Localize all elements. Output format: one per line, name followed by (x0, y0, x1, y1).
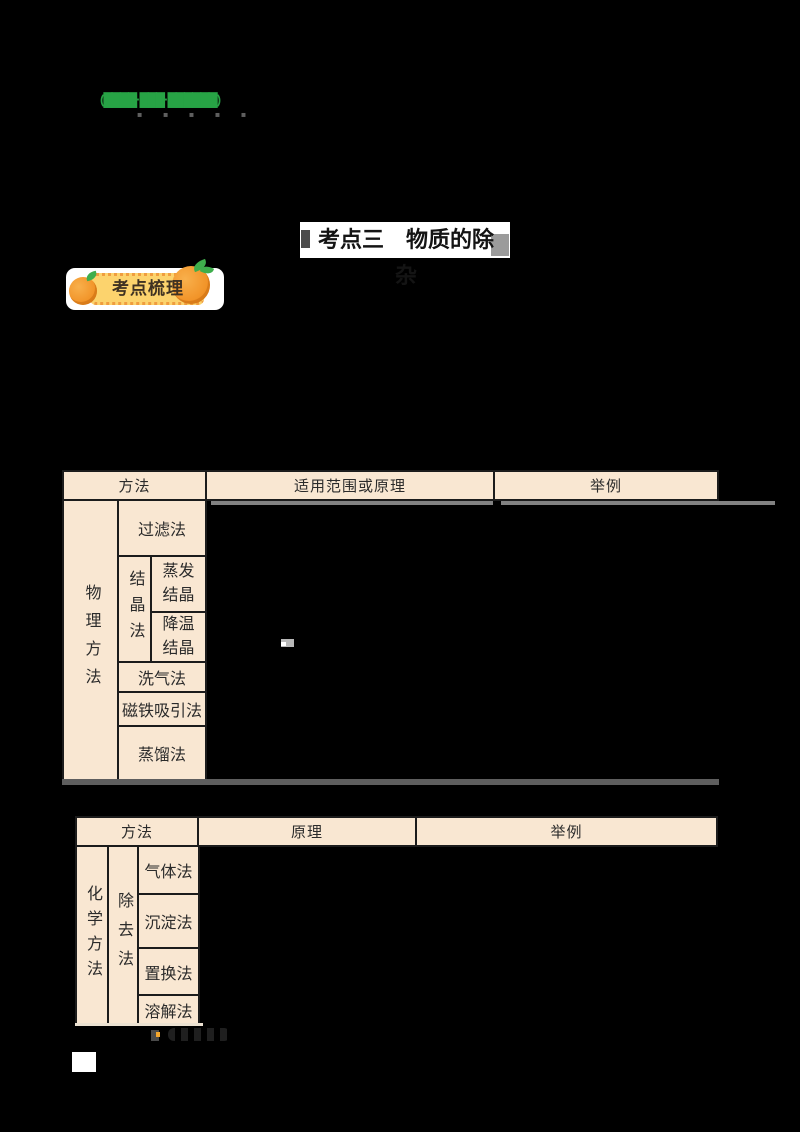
method-group-cell: 结晶法 (117, 555, 152, 663)
badge-strip-notch (210, 280, 220, 293)
method-group-label: 除去法 (111, 892, 135, 979)
method-cell: 降温结晶 (150, 611, 207, 663)
table-chemical-methods: 方法 原理 举例 化学方法 除去法 气体法 沉淀法 置换法 溶解法 (75, 816, 718, 1028)
column-header: 方法 (62, 470, 207, 501)
document-page: (████·███·██████) ▪ ▪ ▪ ▪ ▪ 考点三 物质的除杂 考点… (0, 0, 800, 1132)
column-header: 举例 (493, 470, 719, 501)
method-cell: 蒸发结晶 (150, 555, 207, 613)
category-cell: 物理方法 (62, 499, 119, 781)
method-cell: 磁铁吸引法 (117, 691, 207, 727)
badge-label: 考点梳理 (100, 277, 196, 301)
category-cell: 化学方法 (75, 845, 109, 1025)
category-label: 化学方法 (80, 885, 104, 985)
method-cell: 置换法 (137, 947, 200, 996)
method-label: 蒸发结晶 (159, 560, 199, 608)
category-label: 物理方法 (79, 584, 103, 696)
green-watermark-text: (████·███·██████) (100, 93, 220, 107)
content-remnant-orange-dot (156, 1032, 160, 1037)
column-header: 原理 (197, 816, 417, 847)
faint-dot-marks: ▪ ▪ ▪ ▪ ▪ (137, 110, 255, 119)
method-cell: 过滤法 (117, 499, 207, 557)
method-cell: 蒸馏法 (117, 725, 207, 781)
redacted-cell-edge (211, 501, 493, 505)
orange-fruit-icon (69, 277, 97, 305)
page-title: 考点三 物质的除杂 (308, 222, 504, 258)
white-mark (72, 1052, 96, 1072)
method-group-cell: 除去法 (107, 845, 139, 1025)
method-cell: 沉淀法 (137, 893, 200, 949)
method-cell: 洗气法 (117, 661, 207, 693)
table-bottom-border (62, 779, 719, 785)
column-header: 举例 (415, 816, 718, 847)
column-header: 适用范围或原理 (205, 470, 495, 501)
method-label: 降温结晶 (159, 613, 199, 661)
method-group-label: 结晶法 (123, 570, 147, 648)
content-remnant-dot (281, 642, 286, 646)
method-cell: 溶解法 (137, 994, 200, 1025)
redacted-cell-edge (501, 501, 775, 505)
faint-text-remnant (168, 1028, 230, 1041)
method-cell: 气体法 (137, 845, 200, 895)
table-physical-methods: 方法 适用范围或原理 举例 物理方法 过滤法 结晶法 蒸发结晶 降温结晶 洗气法… (62, 470, 719, 785)
column-header: 方法 (75, 816, 199, 847)
table-bottom-border (75, 1023, 203, 1026)
